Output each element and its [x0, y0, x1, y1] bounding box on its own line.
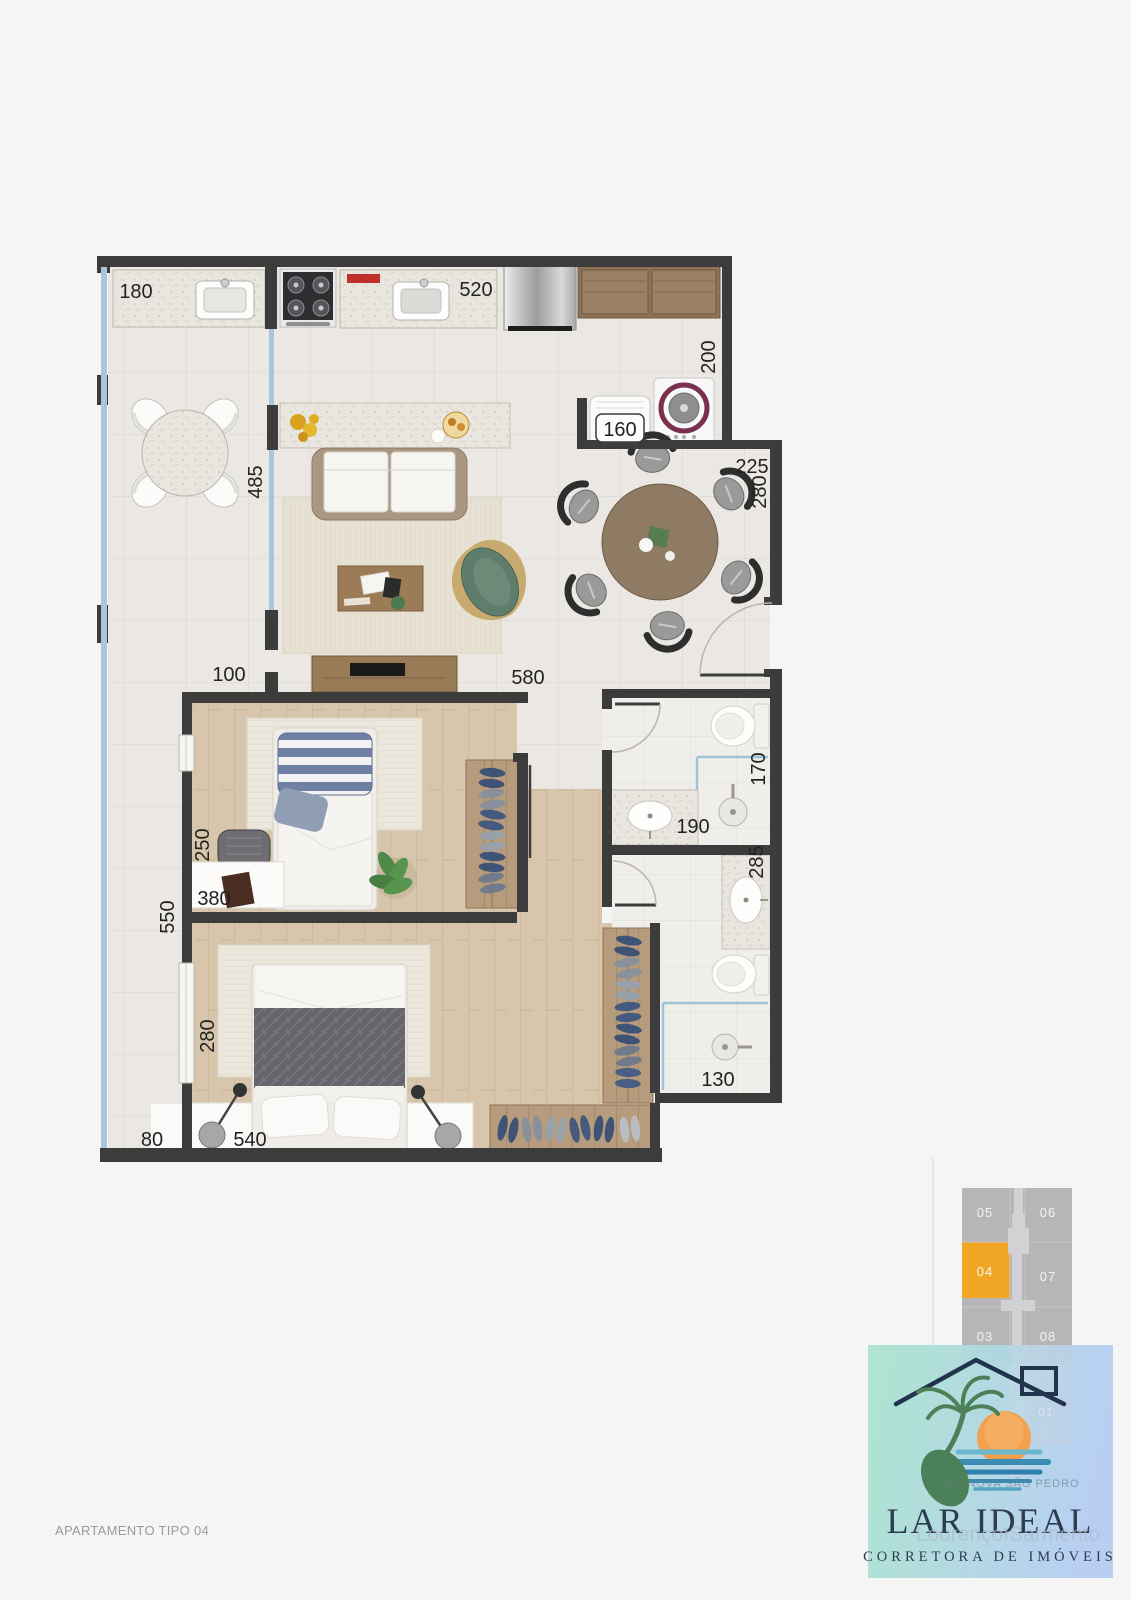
dim-dining-depth: 280	[749, 475, 771, 508]
dim-shower-width: 130	[701, 1069, 734, 1091]
pillow	[261, 1094, 330, 1139]
unit-cell-07: 07	[1040, 1269, 1056, 1284]
dim-balcony-width: 100	[212, 664, 245, 686]
single-bed	[272, 728, 377, 910]
dim-bath1-depth: 170	[748, 752, 770, 785]
sofa	[312, 448, 467, 520]
dim-master-depth: 280	[197, 1019, 219, 1052]
dim-service-width-box: 160	[596, 414, 644, 442]
faucet	[221, 279, 229, 287]
toilet	[711, 704, 769, 748]
master-closet-row	[490, 1105, 653, 1153]
unit-cell-08: 08	[1040, 1329, 1056, 1344]
logo: 01 AV. NOVA SÃO PEDRO LAR IDEAL Lourenço…	[863, 1345, 1117, 1578]
balcony-glass-wall	[101, 267, 107, 1148]
dim-bath2-depth: 285	[746, 845, 768, 878]
coffee-table	[338, 566, 423, 611]
dim-bath1-width: 190	[676, 816, 709, 838]
unit-cell-03: 03	[977, 1329, 993, 1344]
fridge	[504, 262, 576, 330]
bedroom1-closet	[466, 760, 518, 908]
toilet	[712, 955, 769, 995]
double-bed	[252, 964, 407, 1152]
master-closet-column	[603, 928, 653, 1103]
apartment-floorplan-image: 180 520 200 160 225 280 485 100 580 250 …	[0, 0, 1131, 1600]
dim-balcony-counter: 180	[119, 281, 152, 303]
dim-balcony-end: 80	[141, 1129, 163, 1151]
bedroom1-window	[179, 735, 194, 771]
dim-kitchen-counter: 520	[459, 279, 492, 301]
dim-balcony-depth: 485	[245, 465, 267, 498]
striped-pillow	[278, 733, 372, 795]
watermark-street: AV. NOVA SÃO PEDRO	[944, 1477, 1079, 1490]
pillow	[333, 1096, 402, 1141]
dark-duvet	[254, 1008, 405, 1088]
sun-icon	[977, 1411, 1031, 1465]
dim-dining-width: 225	[735, 456, 768, 478]
watermark-agent: LourençoISarmento	[916, 1523, 1100, 1546]
unit-cell-04: 04	[977, 1264, 993, 1279]
faucet	[420, 279, 428, 287]
dim-bedroom1-width: 380	[197, 888, 230, 910]
dim-service-width: 160	[603, 419, 636, 441]
dim-desk-width: 250	[192, 828, 214, 861]
dim-service-depth: 200	[698, 340, 720, 373]
dim-living-width: 580	[511, 667, 544, 689]
unit-cell-05: 05	[977, 1205, 993, 1220]
red-tray	[347, 274, 380, 283]
master-window	[179, 963, 194, 1083]
balcony-table-set	[125, 392, 246, 515]
living-room	[280, 403, 530, 692]
tv-console	[312, 656, 457, 692]
plan-caption: APARTAMENTO TIPO 04	[55, 1523, 209, 1538]
dim-bedroom1-depth: 550	[157, 900, 179, 933]
unit-cell-06: 06	[1040, 1205, 1056, 1220]
balcony-table	[142, 410, 228, 496]
logo-subtitle: CORRETORA DE IMÓVEIS	[863, 1548, 1117, 1565]
tv	[350, 663, 405, 676]
dim-master-width: 540	[233, 1129, 266, 1151]
unit-cell-01-faint: 01	[1038, 1405, 1053, 1419]
